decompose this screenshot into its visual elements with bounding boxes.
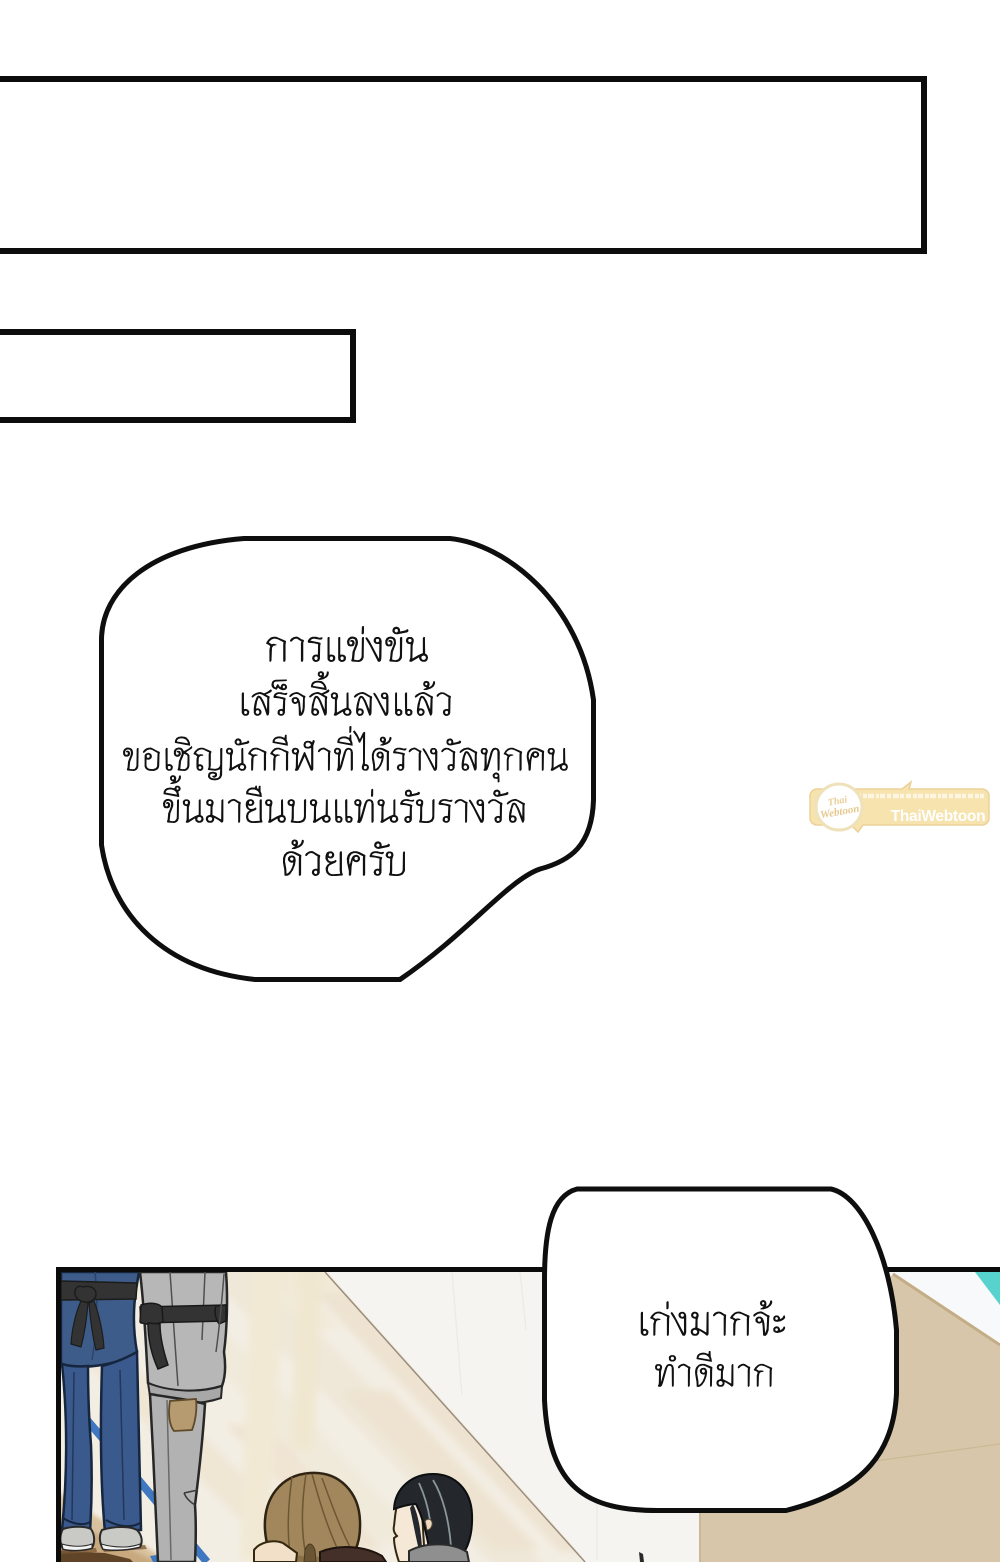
svg-text:ThaiWebtoon: ThaiWebtoon <box>891 808 986 825</box>
